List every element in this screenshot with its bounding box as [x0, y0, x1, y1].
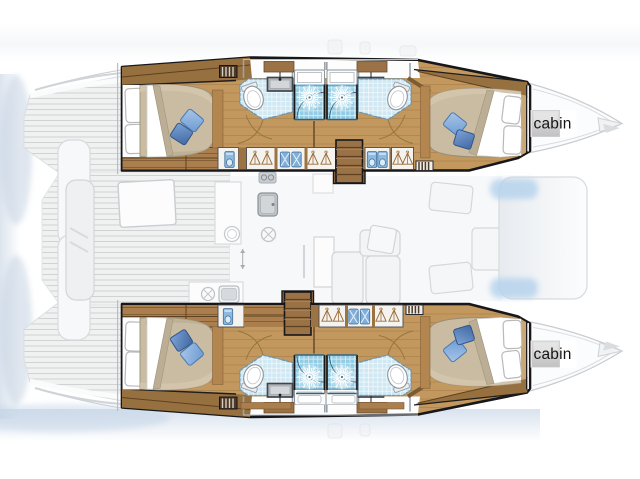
svg-text:cabin: cabin	[534, 346, 572, 363]
svg-text:cabin: cabin	[534, 116, 572, 133]
